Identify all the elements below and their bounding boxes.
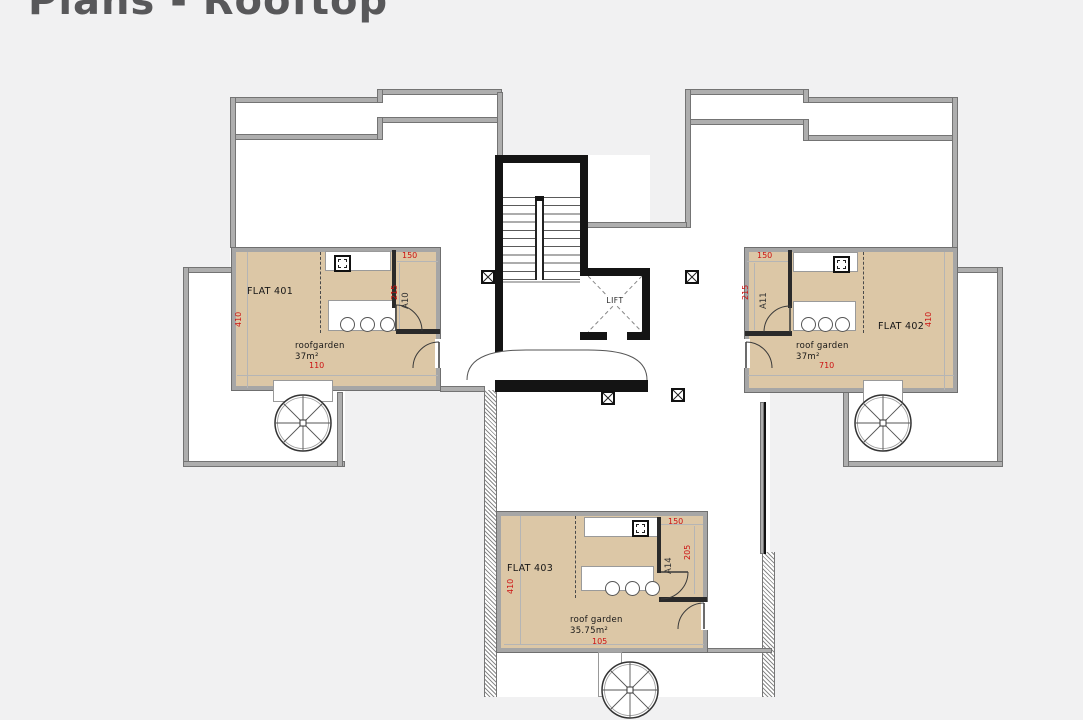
dashed-boundary-line	[575, 516, 576, 598]
room-tag-a11: A11	[759, 281, 769, 309]
roof-drain-icon	[601, 391, 615, 405]
dimension-label: 150	[668, 517, 683, 526]
garden-area: 35.75m²	[570, 626, 623, 637]
dimension-line	[237, 375, 438, 376]
dimension-line	[748, 375, 954, 376]
parapet-wall	[230, 97, 380, 103]
counter-circle	[605, 581, 620, 596]
parapet-wall	[803, 119, 809, 141]
room-tag-a14: A14	[664, 546, 674, 574]
skylight-icon	[334, 255, 351, 272]
parapet-wall	[230, 97, 236, 248]
dimension-line	[747, 261, 789, 262]
parapet-wall	[805, 135, 958, 141]
lift-wall	[580, 268, 650, 276]
counter-circle	[645, 581, 660, 596]
room-tag-a10: A10	[401, 281, 411, 309]
lift-door-opening	[607, 332, 627, 340]
room-divider-wall	[788, 250, 792, 308]
terrace-wall	[183, 267, 237, 273]
roof-drain-icon	[481, 270, 495, 284]
parapet-wall	[952, 97, 958, 248]
dimension-label: 215	[741, 276, 750, 300]
roof-garden-label: roofgarden 37m²	[295, 341, 345, 363]
parapet-wall	[805, 97, 958, 103]
wall-segment	[760, 402, 766, 554]
terrace-wall	[337, 392, 343, 467]
parapet-wall	[803, 89, 809, 103]
terrace-wall	[183, 267, 189, 467]
terrace-wall	[843, 392, 849, 467]
dimension-line	[520, 516, 521, 645]
flat-402-label: FLAT 402	[878, 321, 924, 332]
plan-floor	[650, 228, 687, 392]
dimension-label: 150	[402, 251, 417, 260]
stair-divider	[535, 199, 544, 280]
dimension-label: 215	[390, 276, 399, 300]
page-title: Plans - Rooftop	[28, 0, 388, 24]
roof-drain-icon	[685, 270, 699, 284]
lift-shaft: LIFT	[588, 276, 642, 332]
parapet-wall	[377, 117, 502, 123]
counter-circle	[360, 317, 375, 332]
parapet-wall	[685, 89, 809, 95]
counter-circle	[801, 317, 816, 332]
spiral-stair-icon	[273, 393, 333, 453]
roof-garden-label: roof garden 37m²	[796, 341, 849, 363]
double-door-swing	[466, 349, 648, 381]
parapet-wall	[230, 134, 383, 140]
counter-circle	[625, 581, 640, 596]
parapet-wall	[377, 89, 383, 103]
dimension-label: 105	[592, 637, 607, 646]
flat-401-label: FLAT 401	[247, 286, 293, 297]
counter-circle	[340, 317, 355, 332]
dimension-label: 110	[309, 361, 324, 370]
room-divider-wall	[657, 517, 661, 573]
door-swing-arc	[677, 602, 705, 630]
core-wall	[495, 380, 648, 392]
dimension-label: 205	[683, 536, 692, 560]
lift-label: LIFT	[588, 296, 642, 305]
parapet-wall	[685, 89, 691, 228]
parapet-wall	[377, 89, 502, 95]
terrace-wall	[183, 461, 345, 467]
door-swing-arc	[412, 341, 440, 369]
core-wall	[580, 155, 588, 276]
dashed-boundary-line	[863, 252, 864, 333]
rooftop-floor-plan: LIFT	[0, 0, 1083, 697]
door-swing-arc	[763, 305, 791, 333]
spiral-stair-icon	[600, 660, 660, 720]
roof-drain-icon	[671, 388, 685, 402]
wall-segment	[707, 648, 772, 653]
dashed-boundary-line	[320, 252, 321, 333]
wall-segment	[440, 386, 485, 392]
parapet-wall	[685, 119, 809, 125]
terrace-wall	[843, 461, 1003, 467]
dimension-line	[247, 252, 248, 388]
garden-name: roofgarden	[295, 341, 345, 352]
stair-divider-cap	[535, 196, 544, 201]
hatched-wall-strip	[762, 552, 775, 697]
roof-garden-label: roof garden 35.75m²	[570, 615, 623, 637]
garden-name: roof garden	[570, 615, 623, 626]
parapet-wall	[377, 117, 383, 140]
dimension-label: 710	[819, 361, 834, 370]
skylight-icon	[833, 256, 850, 273]
dimension-line	[754, 263, 755, 330]
lift-wall	[642, 268, 650, 340]
dimension-label: 410	[234, 303, 243, 327]
core-wall	[495, 155, 587, 163]
dimension-line	[397, 261, 438, 262]
dimension-label: 150	[757, 251, 772, 260]
wall-segment	[587, 222, 687, 228]
door-swing-arc	[745, 341, 773, 369]
dimension-label: 410	[506, 570, 515, 594]
stair-landing-line	[503, 281, 580, 283]
dimension-line	[944, 252, 945, 390]
counter-circle	[835, 317, 850, 332]
hatched-wall-strip	[484, 390, 497, 697]
garden-name: roof garden	[796, 341, 849, 352]
spiral-stair-icon	[853, 393, 913, 453]
door-swing-arc	[660, 571, 689, 600]
dimension-line	[694, 526, 695, 594]
parapet-wall	[497, 92, 503, 157]
skylight-icon	[632, 520, 649, 537]
counter-circle	[818, 317, 833, 332]
terrace-wall	[997, 267, 1003, 467]
terrace-wall	[952, 267, 1003, 273]
counter-circle	[380, 317, 395, 332]
dimension-label: 410	[924, 303, 933, 327]
